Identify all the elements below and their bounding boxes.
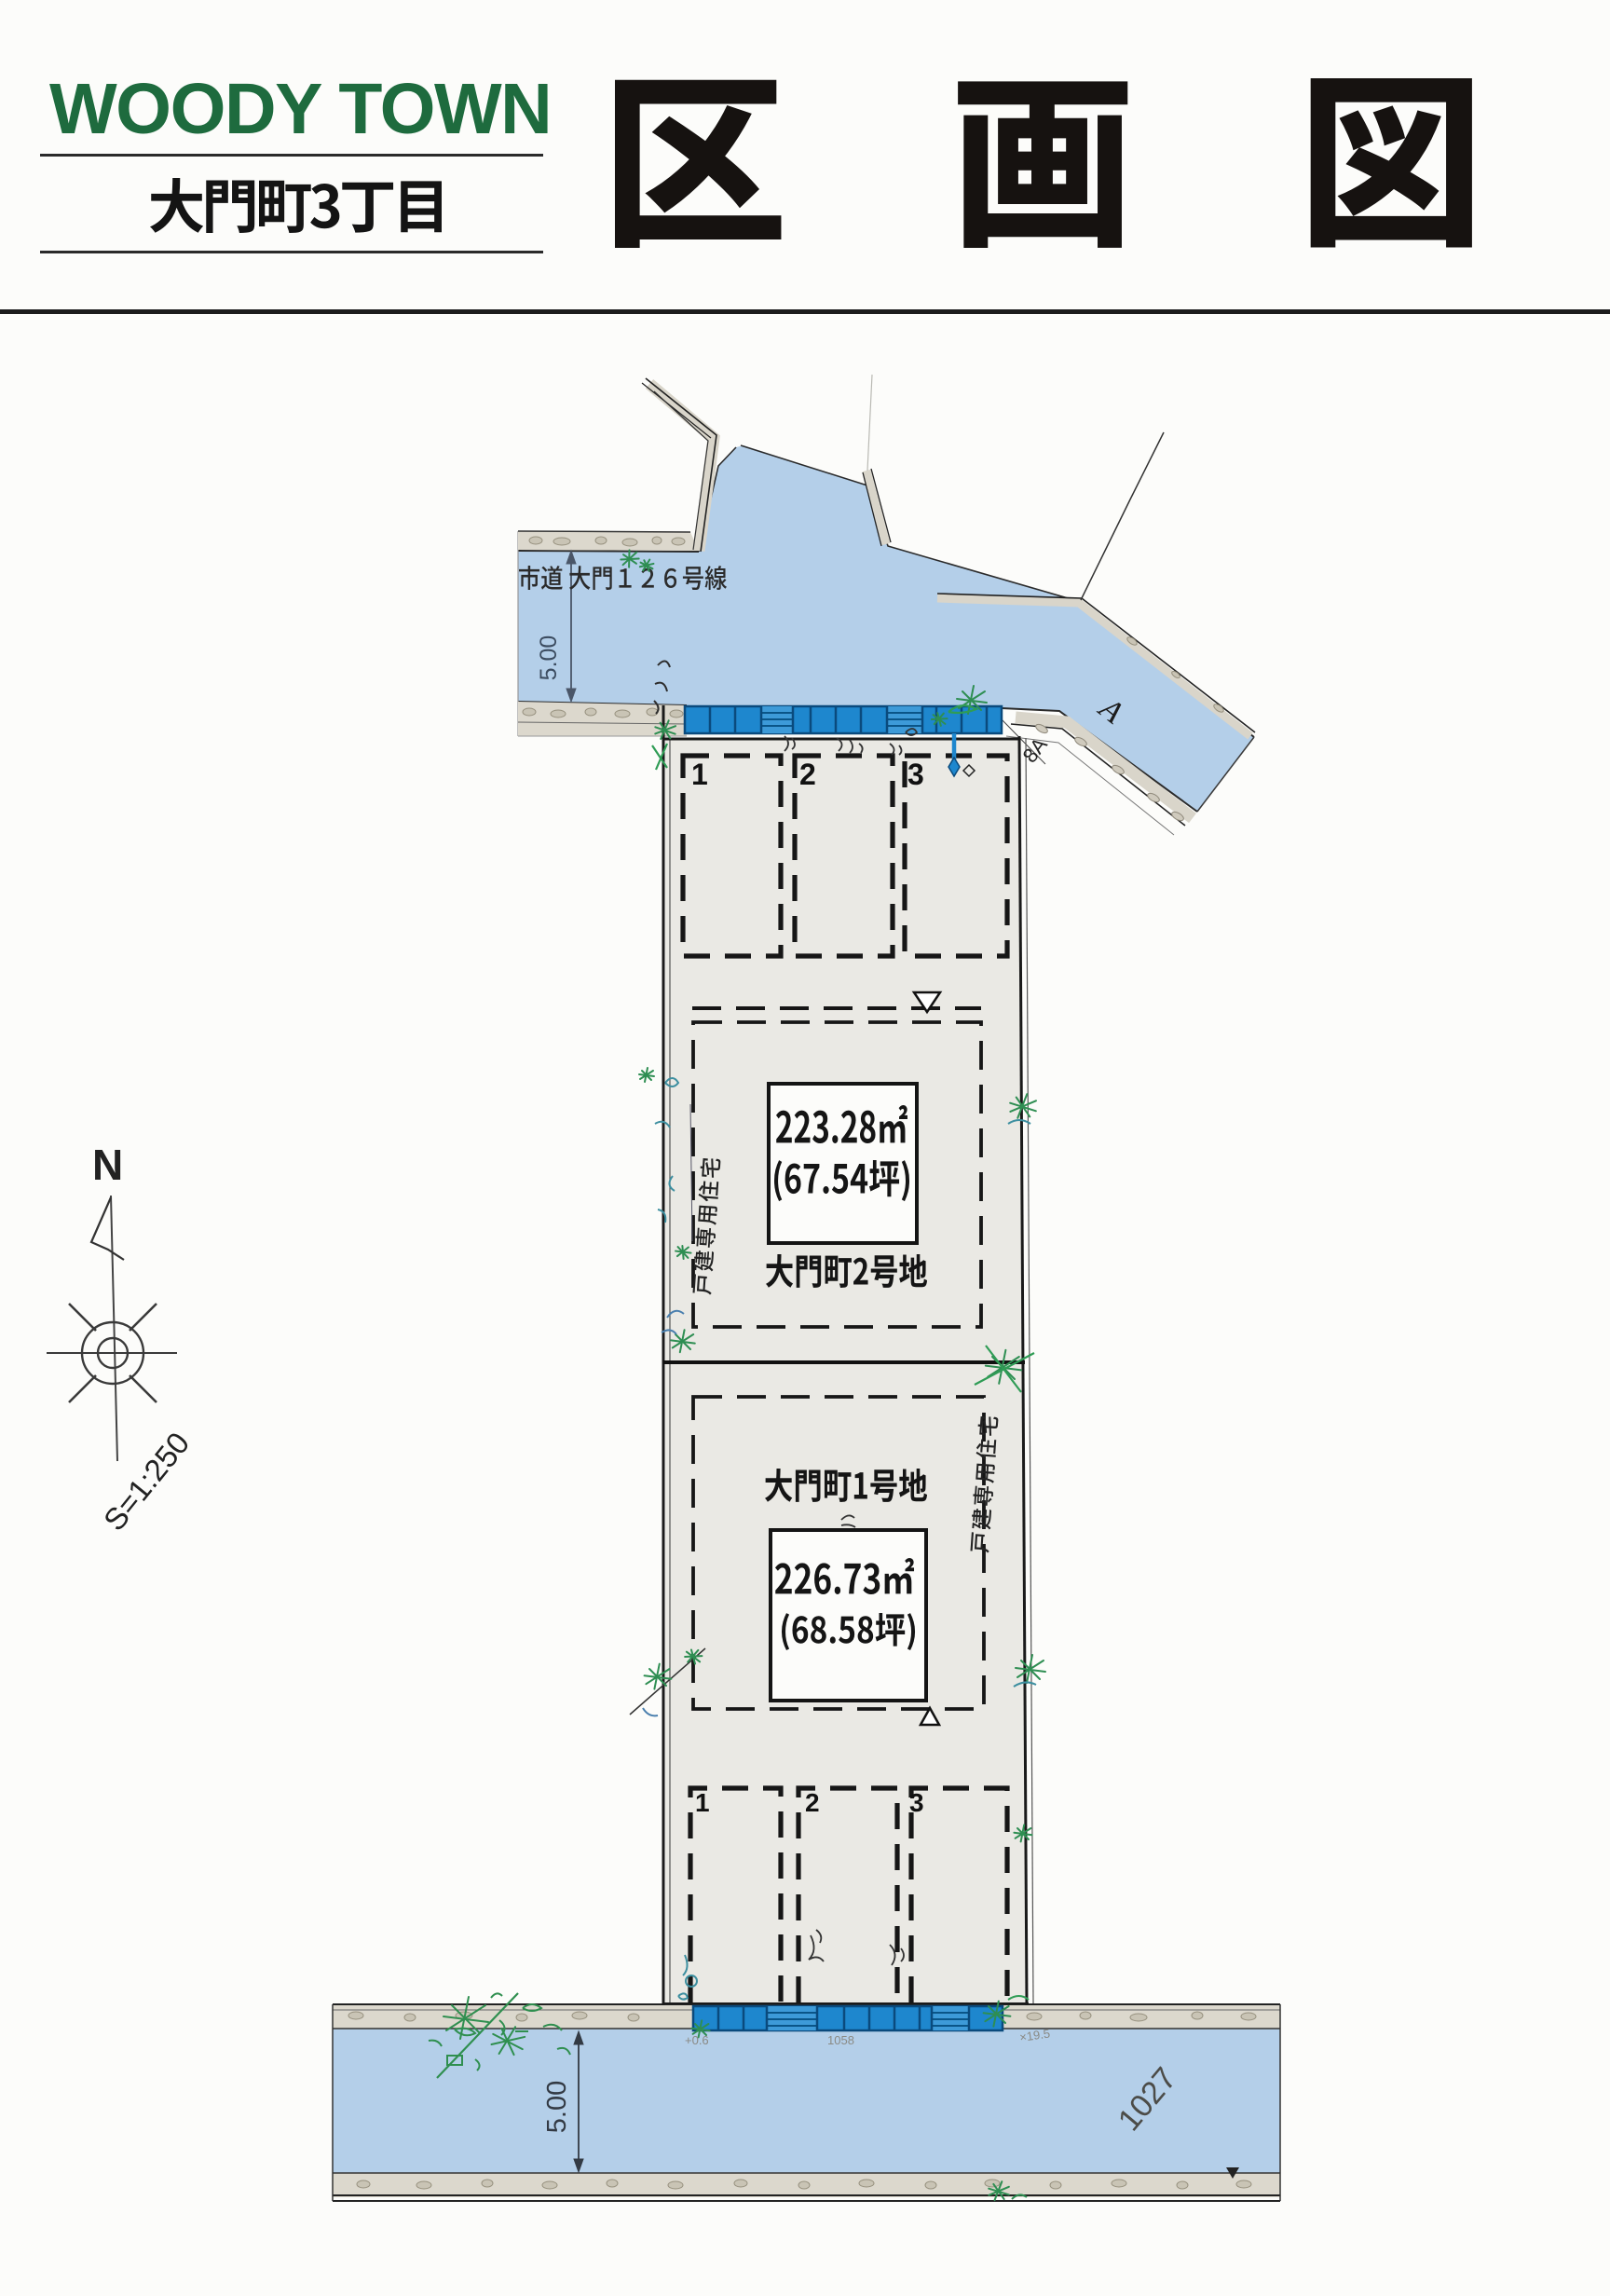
svg-text:3: 3 [909, 1788, 924, 1817]
svg-text:5.00: 5.00 [542, 2081, 572, 2133]
svg-text:N: N [92, 1141, 123, 1189]
svg-text:1058: 1058 [827, 2033, 854, 2047]
svg-text:5.00: 5.00 [536, 635, 562, 681]
svg-text:3: 3 [907, 758, 924, 791]
svg-text:1: 1 [695, 1788, 710, 1817]
svg-text:+0.6: +0.6 [685, 2033, 709, 2047]
svg-text:2: 2 [799, 758, 816, 791]
svg-text:1: 1 [691, 758, 708, 791]
svg-text:S=1:250: S=1:250 [97, 1426, 197, 1537]
svg-text:2: 2 [805, 1788, 820, 1817]
